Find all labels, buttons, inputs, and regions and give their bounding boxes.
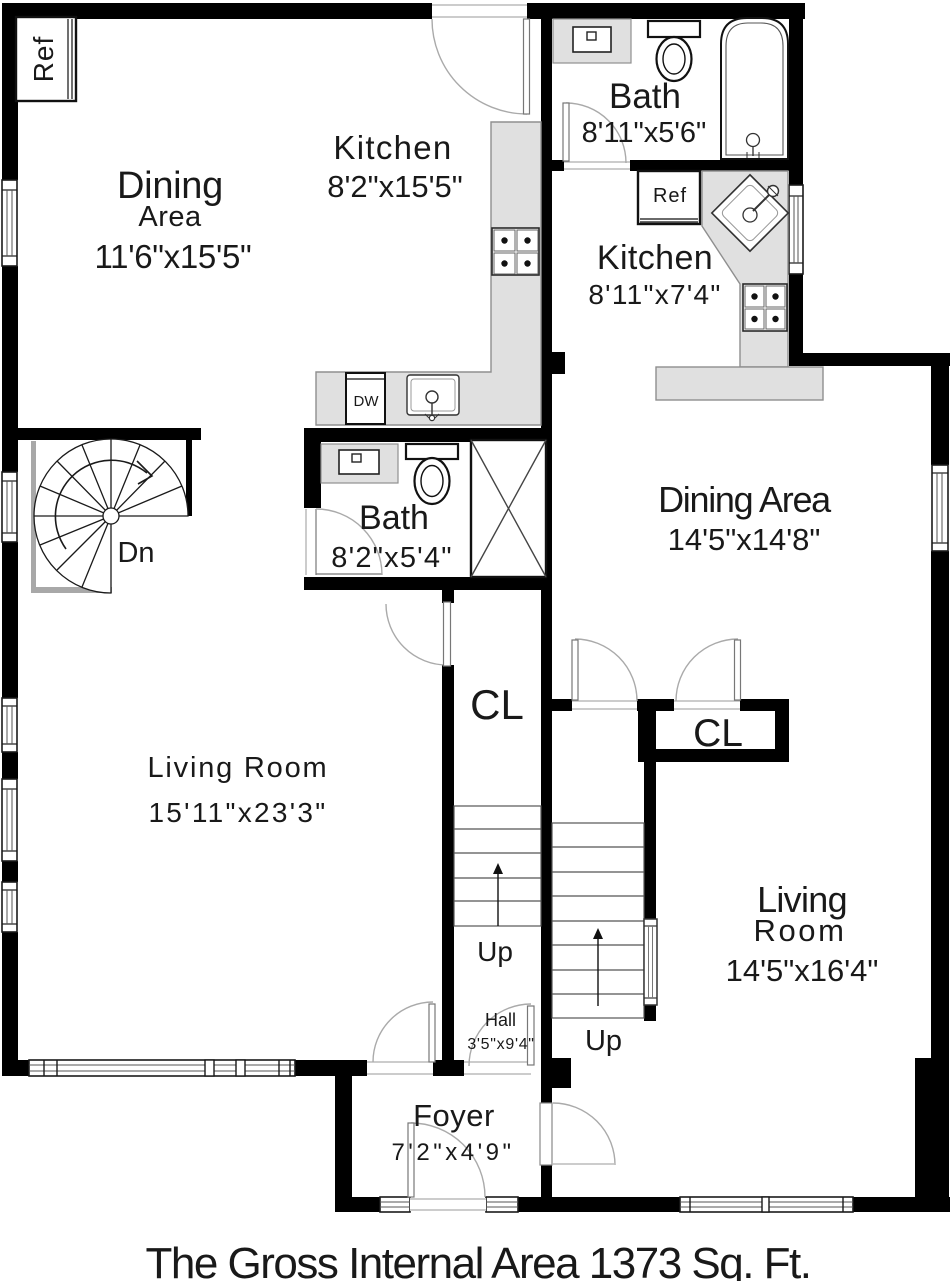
svg-text:8'2"x5'4": 8'2"x5'4" xyxy=(331,542,452,574)
svg-text:Ref: Ref xyxy=(28,36,59,83)
svg-text:15'11"x23'3": 15'11"x23'3" xyxy=(148,797,327,828)
svg-text:Room: Room xyxy=(753,913,846,948)
svg-text:8'11"x5'6": 8'11"x5'6" xyxy=(582,117,707,149)
svg-text:DW: DW xyxy=(354,393,380,410)
svg-text:Bath: Bath xyxy=(359,499,429,537)
svg-text:The Gross Internal Area 1373 S: The Gross Internal Area 1373 Sq. Ft. xyxy=(145,1239,810,1281)
svg-text:3'5"x9'4": 3'5"x9'4" xyxy=(467,1036,534,1053)
svg-text:11'6"x15'5": 11'6"x15'5" xyxy=(95,238,252,275)
svg-text:8'11"x7'4": 8'11"x7'4" xyxy=(588,279,721,310)
svg-text:Bath: Bath xyxy=(609,77,681,116)
svg-text:Dn: Dn xyxy=(117,537,154,569)
svg-text:8'2"x15'5": 8'2"x15'5" xyxy=(327,169,463,204)
svg-text:Kitchen: Kitchen xyxy=(597,239,713,277)
svg-text:Living Room: Living Room xyxy=(148,752,329,784)
svg-text:Hall: Hall xyxy=(485,1010,516,1030)
svg-text:14'5"x16'4": 14'5"x16'4" xyxy=(726,953,879,988)
svg-text:Ref: Ref xyxy=(653,185,687,207)
svg-text:Area: Area xyxy=(138,201,202,233)
svg-text:Up: Up xyxy=(477,936,513,967)
svg-text:7'2"x4'9": 7'2"x4'9" xyxy=(391,1139,514,1166)
svg-text:Up: Up xyxy=(585,1025,622,1057)
svg-text:Foyer: Foyer xyxy=(413,1098,495,1133)
svg-text:14'5"x14'8": 14'5"x14'8" xyxy=(668,522,821,557)
svg-text:Kitchen: Kitchen xyxy=(333,129,452,166)
svg-text:CL: CL xyxy=(693,712,743,755)
svg-text:CL: CL xyxy=(470,681,524,728)
svg-text:Dining Area: Dining Area xyxy=(658,479,832,520)
